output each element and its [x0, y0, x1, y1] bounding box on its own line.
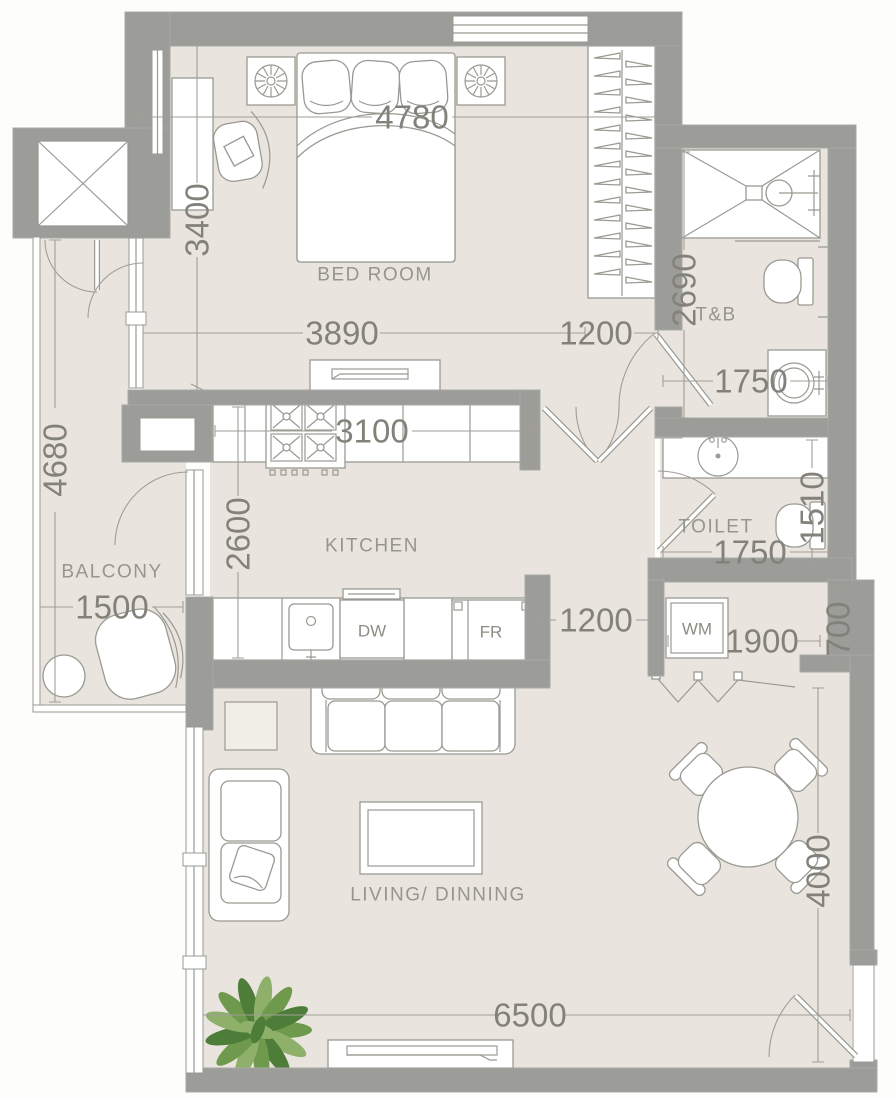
dim-laundry-width: 1900	[725, 623, 798, 660]
entry-door-opening	[853, 965, 874, 1062]
top-window	[453, 16, 588, 42]
living-window-wall	[183, 727, 206, 1073]
bed	[297, 53, 455, 262]
dish-rack	[343, 589, 400, 599]
label-balcony: BALCONY	[61, 562, 162, 583]
label-dishwasher: DW	[358, 622, 386, 641]
tv-console	[328, 1040, 513, 1068]
loveseat	[209, 769, 289, 921]
coffee-table	[360, 802, 482, 874]
balcony-bedroom-window	[126, 238, 146, 388]
dim-balcony-width: 1500	[75, 589, 148, 626]
bedroom-dresser	[310, 360, 440, 392]
dim-hall-width: 1200	[559, 602, 632, 639]
floor-plan-drawing: 4780 3400 3890 1200 2690 1750 4680 1500 …	[0, 0, 895, 1100]
dim-balcony-height: 4680	[37, 423, 74, 496]
dim-living-height: 4000	[800, 834, 837, 907]
dim-laundry-height: 700	[820, 601, 857, 656]
dim-toilet-height: 1510	[794, 471, 831, 544]
dim-bedroom-lower-width: 3890	[305, 315, 378, 352]
balcony-table	[43, 655, 85, 697]
balcony-kitchen-window	[186, 470, 203, 595]
label-kitchen: KITCHEN	[325, 536, 419, 557]
duct-opening	[140, 418, 195, 451]
tb-toilet	[764, 258, 813, 305]
bedroom-left-window	[152, 50, 163, 154]
side-table	[225, 702, 277, 750]
elevator	[38, 141, 128, 226]
closet	[588, 46, 655, 298]
label-tb: T&B	[695, 305, 736, 326]
dim-kitchen-width: 3100	[335, 413, 408, 450]
shower	[682, 150, 820, 241]
label-washing-machine: WM	[682, 620, 712, 639]
label-living: LIVING/ DINNING	[350, 885, 526, 906]
label-fridge: FR	[480, 623, 503, 642]
floor-plan: 4780 3400 3890 1200 2690 1750 4680 1500 …	[0, 0, 895, 1100]
dim-closet-width: 1200	[559, 315, 632, 352]
dim-tb-width: 1750	[714, 363, 787, 400]
dim-bedroom-upper-height: 3400	[179, 183, 216, 256]
dim-living-width: 6500	[493, 997, 566, 1034]
dining-table	[698, 767, 798, 867]
kitchen-stove	[266, 398, 345, 475]
dim-bedroom-width: 4780	[375, 99, 448, 136]
label-toilet: TOILET	[678, 517, 753, 538]
dim-kitchen-height: 2600	[220, 497, 257, 570]
label-bedroom: BED ROOM	[317, 265, 432, 286]
dim-toilet-width: 1750	[713, 534, 786, 571]
